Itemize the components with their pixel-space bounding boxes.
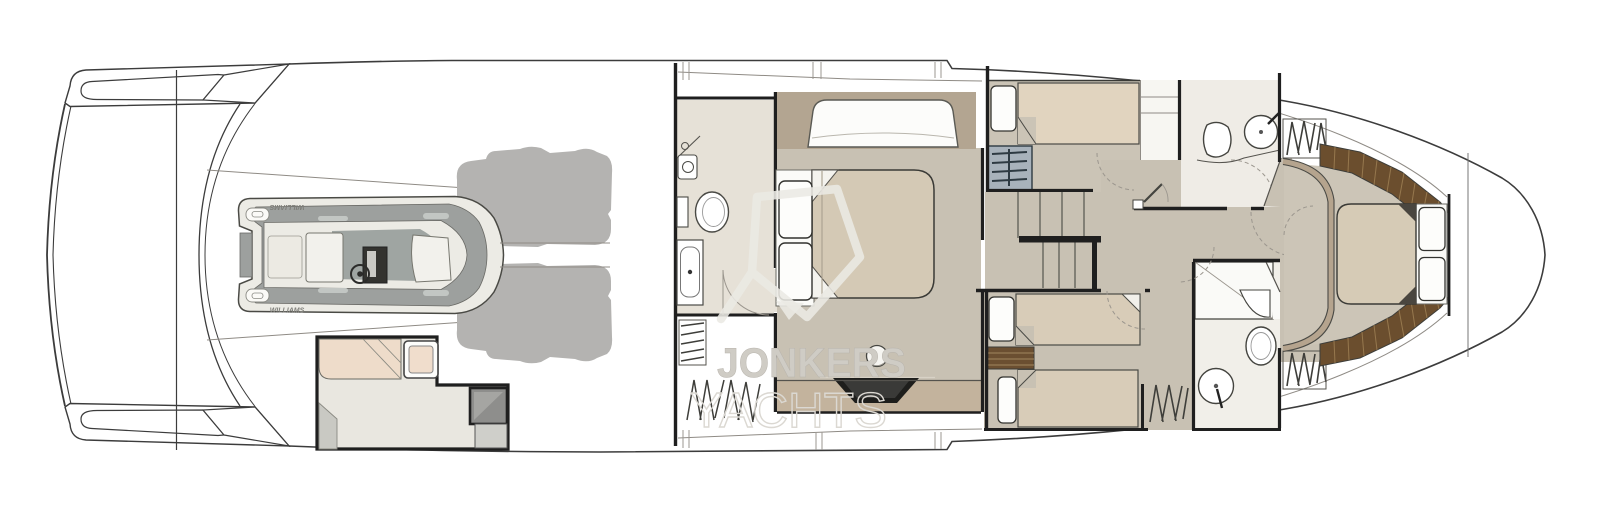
svg-text:WILLIAMS: WILLIAMS [269,203,304,210]
svg-text:JONKERS: JONKERS [717,339,906,386]
svg-text:YACHTS: YACHTS [690,384,887,438]
svg-text:WILLIAMS: WILLIAMS [270,308,305,315]
